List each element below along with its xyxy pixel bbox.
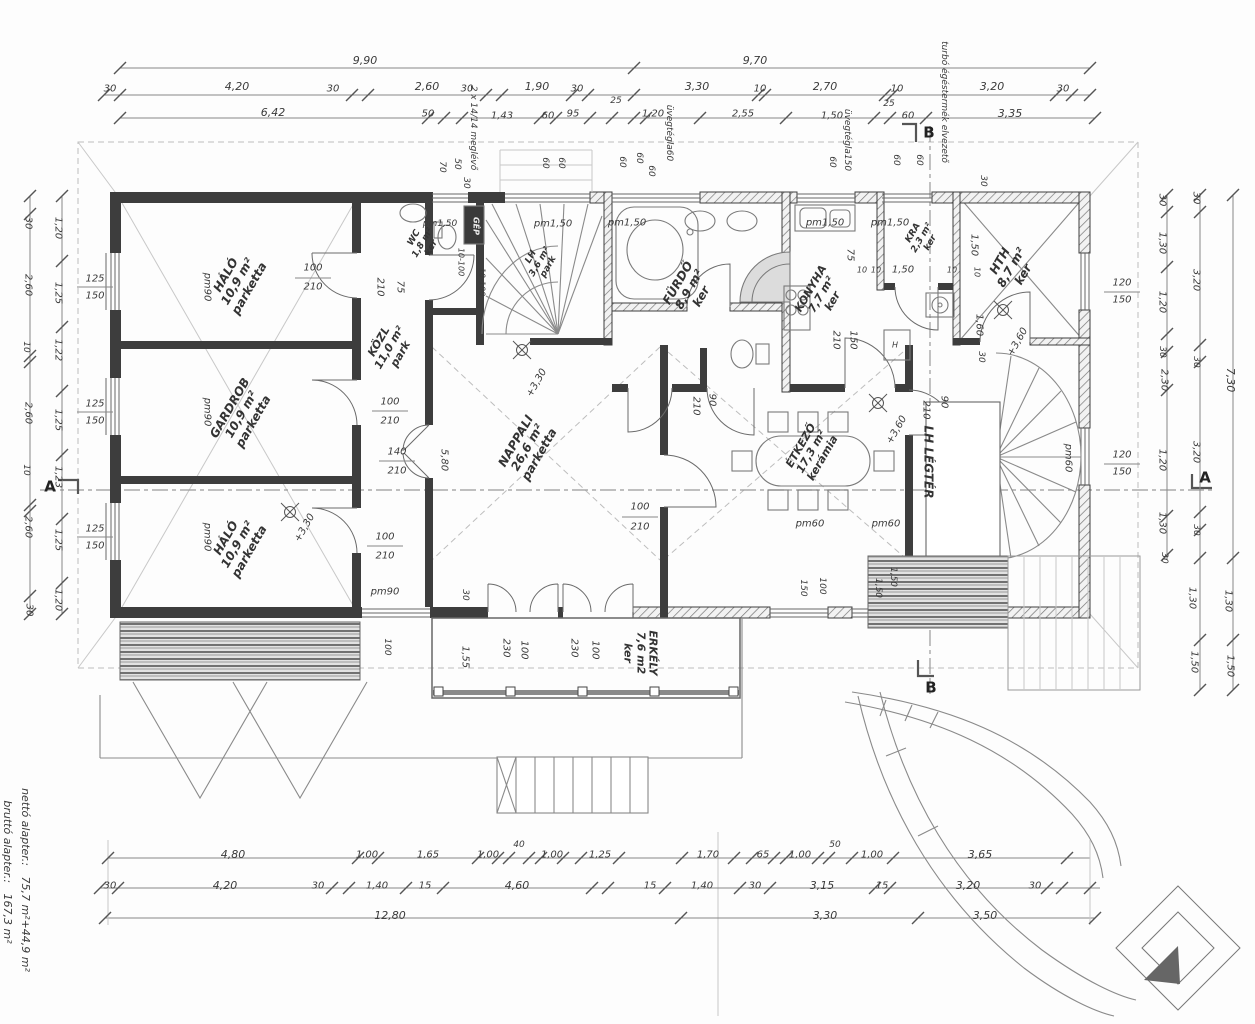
dimension-label: 30 [978, 175, 988, 186]
dimension-label: 100 [589, 640, 600, 659]
dimension-label: 1,40 [366, 880, 388, 891]
dimension-label: 10 [871, 267, 881, 276]
dimension-label: 30 [23, 604, 34, 617]
room-label: KONYHA 7,7 m² ker [793, 263, 851, 327]
dimension-label: 125 [85, 273, 104, 284]
dimension-label: 150 [85, 290, 104, 301]
dimension-label: 210 [374, 277, 385, 296]
dimension-label: 3,15 [810, 880, 835, 892]
dimension-label: 95 [567, 108, 580, 119]
dimension-label: 30 [22, 217, 33, 230]
dimension-label: 2,60 [22, 516, 33, 538]
dimension-label: 10 [754, 83, 767, 94]
dimension-label: 25 [610, 96, 621, 106]
dimension-label: 60 [542, 110, 555, 121]
dimension-label: 1,50 [888, 567, 898, 587]
dimension-label: 1,20 [642, 108, 664, 119]
window-tag: pm90 [201, 398, 212, 427]
dimension-label: 40 [513, 840, 524, 850]
dimension-label: 120 [1112, 277, 1131, 288]
dimension-label: 10 [857, 267, 867, 276]
dimension-label: 15 [644, 880, 657, 891]
room-label: ERKÉLY 7,6 m2 ker [622, 630, 659, 675]
dimension-label: 30 [460, 589, 470, 600]
dimension-label: 30 [104, 880, 117, 891]
dimension-label: 25 [883, 99, 894, 109]
dimension-label: 1,50 [968, 234, 979, 256]
dimension-label: 6,42 [261, 107, 286, 119]
dimension-label: 30 [1190, 192, 1201, 205]
dimension-label: 50 [452, 158, 462, 169]
window-tag: pm90 [371, 586, 400, 597]
window-tag: pm1,50 [423, 219, 458, 229]
dimension-label: 60 [891, 154, 901, 165]
dimension-label: 5,80 [438, 449, 449, 471]
dimension-label: 4,20 [213, 880, 238, 892]
room-label: HÁLÓ 10,9 m² parketta [206, 247, 270, 317]
dimension-label: 3,30 [685, 81, 710, 93]
dimension-label: 2,60 [415, 81, 440, 93]
dimension-label: 150 [798, 579, 808, 596]
dimension-label: 100 [375, 531, 394, 542]
note: turbó égéstermék elvezető [939, 41, 949, 163]
dimension-label: 10 [947, 267, 957, 276]
dimension-label: 30 [104, 83, 117, 94]
dimension-label: 1,20 [52, 217, 63, 239]
dimension-label: 2,70 [813, 81, 838, 93]
dimension-label: H [892, 342, 898, 351]
label-layer: HÁLÓ 10,9 m² parkettaGARDROB 10,9 m² par… [0, 0, 1255, 1024]
dimension-label: 1,30 [1222, 590, 1233, 612]
dimension-label: 9,90 [353, 55, 378, 67]
dimension-label: 1,90 [525, 81, 550, 93]
dimension-label: 150 [1112, 466, 1131, 477]
window-tag: pm90 [201, 273, 212, 302]
dimension-label: 12,80 [374, 910, 406, 922]
note: üvegtégla150 [842, 109, 852, 171]
note: üvegtégla60 [664, 105, 674, 162]
room-label: LH LÉGTÉR [921, 426, 934, 499]
dimension-label: 1,55 [459, 646, 470, 668]
area-summary: nettó alapter.: 75,7 m²+44,9 m² [19, 788, 31, 972]
dimension-label: 210 [830, 330, 841, 349]
dimension-label: 150 [85, 415, 104, 426]
dimension-label: 60 [634, 152, 644, 163]
dimension-label: 30 [1191, 356, 1201, 367]
dimension-label: 210 [387, 465, 406, 476]
dimension-label: 1,65 [417, 849, 439, 860]
dimension-label: 30 [1159, 552, 1169, 563]
dimension-label: 1,25 [52, 282, 63, 304]
dimension-label: 140 [387, 446, 406, 457]
dimension-label: 4,60 [505, 880, 530, 892]
room-label: NAPPALI 26,6 m² parketta [496, 413, 560, 483]
dimension-label: 50 [422, 108, 435, 119]
dimension-label: 60 [827, 156, 837, 167]
radiator-tag: 10-100 [477, 268, 486, 296]
dimension-label: 1,50 [1224, 655, 1235, 677]
dimension-label: 50 [829, 840, 840, 850]
dimension-label: 60 [617, 156, 627, 167]
dimension-label: 10 [21, 341, 31, 352]
window-tag: pm60 [796, 518, 825, 529]
dimension-label: 1,20 [1156, 449, 1167, 471]
level-mark: +3,60 [884, 414, 909, 446]
dimension-label: 1,43 [491, 110, 513, 121]
dimension-label: 1,30 [1156, 232, 1167, 254]
dimension-label: 30 [461, 177, 471, 188]
dimension-label: 1,00 [477, 849, 499, 860]
note: 2 x 14/14 meglévő [468, 86, 478, 170]
dimension-label: 1,50 [821, 110, 843, 121]
dimension-label: 30 [1191, 524, 1201, 535]
dimension-label: 3,50 [973, 910, 998, 922]
level-mark: +3,60 [1005, 326, 1030, 358]
dimension-label: 30 [749, 880, 762, 891]
dimension-label: 60 [902, 110, 915, 121]
dimension-label: 1,70 [697, 849, 719, 860]
dimension-label: 100 [303, 262, 322, 273]
dimension-label: 2,60 [22, 402, 33, 424]
dimension-label: 90 [938, 396, 949, 409]
dimension-label: 4,20 [225, 81, 250, 93]
dimension-label: 30 [312, 880, 325, 891]
room-label: WC 1,8 m² ker [402, 221, 444, 264]
dimension-label: 75 [844, 249, 855, 262]
room-label: FÜRDŐ 8,9 m² ker [661, 259, 720, 320]
dimension-label: 100 [817, 577, 827, 594]
dimension-label: 1,25 [589, 849, 611, 860]
dimension-label: 125 [85, 523, 104, 534]
room-label: GARDROB 10,9 m² parketta [208, 376, 276, 454]
dimension-label: 230 [500, 638, 511, 657]
dimension-label: 2,55 [732, 108, 754, 119]
room-label: KÖZL 11,0 m² park [362, 318, 418, 377]
dimension-label: 60 [914, 154, 924, 165]
dimension-label: 3,35 [998, 108, 1023, 120]
floorplan-sheet: HÁLÓ 10,9 m² parkettaGARDROB 10,9 m² par… [0, 0, 1255, 1024]
dimension-label: 100 [518, 640, 529, 659]
room-label: LH 3,6 m² park [519, 240, 561, 283]
window-tag: pm1,50 [534, 218, 572, 229]
dimension-label: 9,70 [743, 55, 768, 67]
dimension-label: 100 [380, 396, 399, 407]
dimension-label: 150 [847, 330, 858, 349]
dimension-label: 1,25 [52, 529, 63, 551]
dimension-label: 1,30 [1186, 587, 1197, 609]
dimension-label: 30 [571, 83, 584, 94]
dimension-label: 60 [646, 165, 656, 176]
dimension-label: 210 [380, 415, 399, 426]
dimension-label: 3,20 [1190, 441, 1201, 463]
radiator-tag: 10-100 [456, 248, 465, 276]
equipment-label: GÉP [471, 217, 480, 235]
dimension-label: 1,20 [1156, 291, 1167, 313]
window-tag: pm1,50 [806, 217, 844, 228]
dimension-label: 1,50 [873, 578, 883, 598]
dimension-label: 30 [1029, 880, 1042, 891]
level-mark: +3,30 [524, 367, 549, 399]
dimension-label: 30 [1156, 194, 1167, 207]
dimension-label: 10 [891, 83, 904, 94]
dimension-label: 230 [568, 638, 579, 657]
section-marker: A [1199, 470, 1211, 487]
dimension-label: 3,65 [968, 849, 993, 861]
dimension-label: 15 [876, 880, 889, 891]
level-mark: +3,30 [292, 512, 317, 544]
section-marker: A [44, 479, 56, 496]
area-summary: bruttó alapter.: 167,3 m² [1, 800, 13, 943]
dimension-label: 1,22 [52, 339, 63, 361]
window-tag: pm1,50 [871, 217, 909, 228]
window-tag: pm60 [872, 518, 901, 529]
room-label: KRA 2,3 m² ker [901, 216, 943, 259]
dimension-label: 1,00 [356, 849, 378, 860]
dimension-label: 30 [1057, 83, 1070, 94]
dimension-label: 210 [375, 550, 394, 561]
dimension-label: 100 [382, 638, 392, 655]
dimension-label: 30 [1157, 346, 1167, 357]
dimension-label: 30 [461, 83, 474, 94]
dimension-label: 75 [394, 281, 405, 294]
dimension-label: 2,30 [1158, 369, 1169, 391]
section-marker: B [923, 125, 934, 142]
dimension-label: 90 [706, 394, 717, 407]
dimension-label: 210 [920, 400, 931, 419]
dimension-label: 7,30 [1224, 368, 1236, 393]
dimension-label: 10 [972, 267, 981, 277]
dimension-label: 1,00 [541, 849, 563, 860]
dimension-label: 150 [85, 540, 104, 551]
dimension-label: 150 [1112, 294, 1131, 305]
dimension-label: 3,20 [1190, 269, 1201, 291]
dimension-label: 30 [327, 83, 340, 94]
dimension-label: 2,60 [22, 274, 33, 296]
dimension-label: 3,30 [813, 910, 838, 922]
room-label: HÁLÓ 10,9 m² parketta [206, 510, 270, 580]
dimension-label: 100 [630, 501, 649, 512]
dimension-label: 60 [556, 157, 566, 168]
section-marker: B [925, 680, 936, 697]
dimension-label: 1,50 [1188, 651, 1199, 673]
dimension-label: 60 [540, 157, 550, 168]
dimension-label: 15 [419, 880, 432, 891]
dimension-label: 3,20 [980, 81, 1005, 93]
dimension-label: 1,50 [892, 264, 914, 275]
dimension-label: 65 [757, 849, 770, 860]
dimension-label: 10 [21, 464, 31, 475]
dimension-label: 120 [1112, 449, 1131, 460]
window-tag: pm1,50 [608, 217, 646, 228]
window-tag: pm60 [1062, 444, 1073, 473]
dimension-label: 30 [976, 351, 986, 362]
dimension-label: 1,25 [52, 409, 63, 431]
dimension-label: 1,60 [973, 314, 984, 336]
dimension-label: 1,00 [861, 849, 883, 860]
dimension-label: 4,80 [221, 849, 246, 861]
dimension-label: 210 [630, 521, 649, 532]
dimension-label: 1,40 [691, 880, 713, 891]
dimension-label: 210 [303, 281, 322, 292]
dimension-label: 210 [690, 396, 701, 415]
room-label: ÉTKEZŐ 17,3 m² kerámia [784, 421, 841, 483]
dimension-label: 3,20 [956, 880, 981, 892]
dimension-label: 1,20 [52, 589, 63, 611]
dimension-label: 125 [85, 398, 104, 409]
room-label: HTH 8,7 m² ker [984, 239, 1041, 297]
window-tag: pm90 [201, 523, 212, 552]
dimension-label: 1,23 [52, 466, 63, 488]
dimension-label: 1,00 [789, 849, 811, 860]
dimension-label: 1,30 [1156, 512, 1167, 534]
dimension-label: 70 [437, 161, 447, 172]
